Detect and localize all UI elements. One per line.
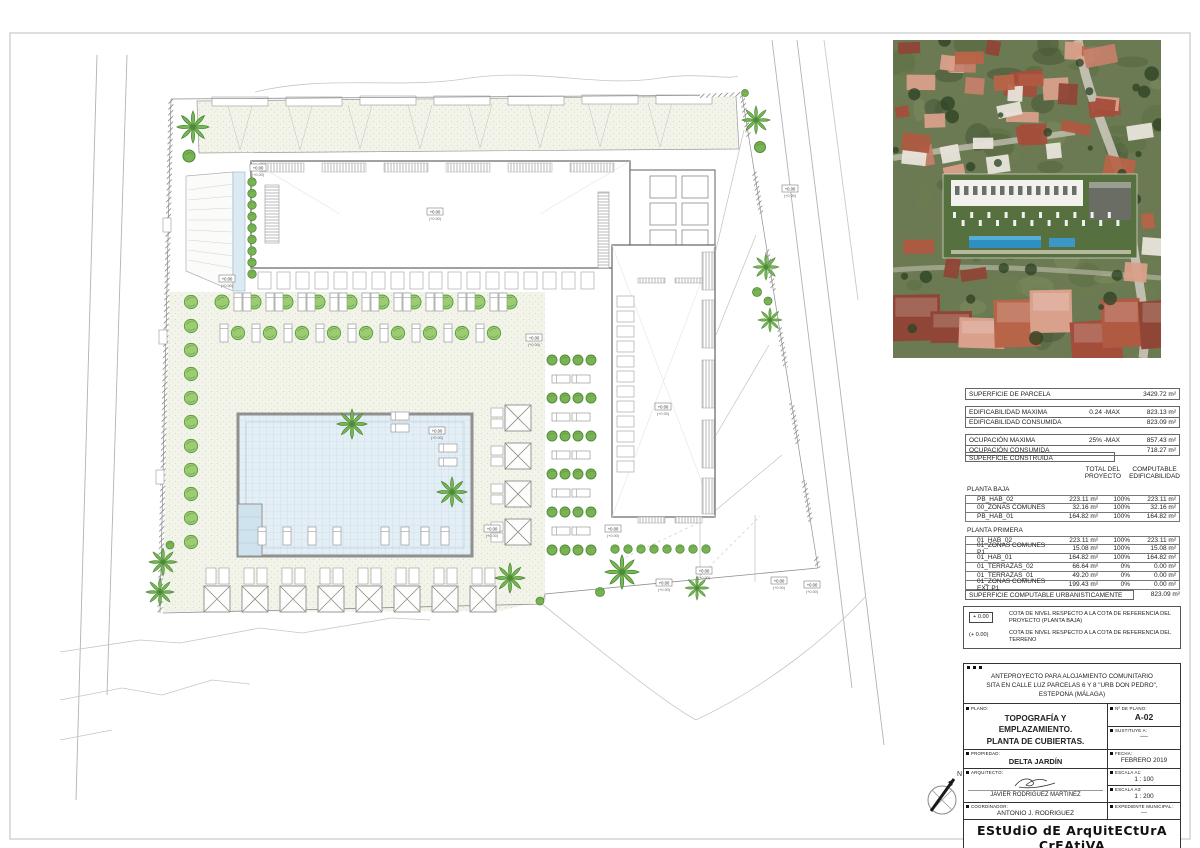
cota-legend: + 0.00 COTA DE NIVEL RESPECTO A LA COTA … [963,606,1181,649]
building-roof-east [612,245,715,523]
propiedad-cell: PROPIEDAD: DELTA JARDÍN [964,750,1108,768]
escala-a3-value: 1 : 200 [1112,793,1176,800]
table-row: 01_ZONAS COMUNES EXT P1199.43 m²0%0.00 m… [965,581,1180,590]
cota-marker: +0.00(+0.00) [655,403,671,416]
cota-marker: +0.00(+0.00) [526,334,542,347]
svg-text:+0.00: +0.00 [529,336,540,341]
parcel-table-group: EDIFICABILIDAD MAXIMA0.24 -MAX823.13 m²E… [965,406,1180,428]
svg-text:+0.00: +0.00 [608,527,619,532]
cota-marker: +0.00(+0.00) [656,579,672,592]
parcel-table-group: SUPERFICIE DE PARCELA3429.72 m² [965,388,1180,400]
legend-text-terrain: COTA DE NIVEL RESPECTO A LA COTA DE REFE… [1009,630,1175,644]
aerial-photo-render [893,40,1161,358]
table-row: 01_TERRAZAS_0266.64 m²0%0.00 m² [965,563,1180,572]
aerial-photo [893,40,1161,358]
firm-banner: EStUdiO dE ArqUitECtUrA CrEAtiVA www.sua… [964,819,1180,848]
escala-a1-label: ESCALA A1: [1110,770,1142,775]
table-row: EDIFICABILIDAD MAXIMA0.24 -MAX823.13 m² [966,407,1179,417]
expediente-label: EXPEDIENTE MUNICIPAL: [1110,804,1173,809]
svg-text:+0.00: +0.00 [253,166,264,171]
coordinador-cell: COORDINADOR: ANTONIO J. RODRIGUEZ [964,803,1108,819]
table-row: EDIFICABILIDAD CONSUMIDA823.09 m² [966,417,1179,427]
project-title: ANTEPROYECTO PARA ALOJAMIENTO COMUNITARI… [964,664,1180,703]
built-table-columns: TOTAL DEL PROYECTO COMPUTABLE EDIFICABIL… [965,466,1180,481]
cota-marker: +0.00(+0.00) [782,185,798,198]
building-roof-wing [630,170,715,252]
drawing-sheet: +0.00(+0.00)+0.00(+0.00)+0.00(+0.00)+0.0… [0,0,1200,848]
sustituye-label: SUSTITUYE A: [1110,728,1147,733]
project-line-1: ANTEPROYECTO PARA ALOJAMIENTO COMUNITARI… [970,672,1174,681]
built-area-table: SUPERFICIE CONSTRUIDA TOTAL DEL PROYECTO… [965,452,1180,600]
plano-name-2: PLANTA DE CUBIERTAS. [968,736,1103,747]
svg-text:(+0.00): (+0.00) [698,576,711,580]
svg-text:(+0.00): (+0.00) [486,534,499,538]
plano-cell: PLANO: TOPOGRAFÍA Y EMPLAZAMIENTO. PLANT… [964,704,1108,748]
built-table-title: SUPERFICIE CONSTRUIDA [965,452,1115,462]
cota-marker: +0.00(+0.00) [804,581,820,594]
built-table-footer: SUPERFICIE COMPUTABLE URBANISTICAMENTE 8… [965,590,1180,600]
escala-a1-value: 1 : 100 [1112,776,1176,783]
project-line-2: SITA EN CALLE LUZ PARCELAS 6 Y 8 "URB DO… [970,681,1174,690]
firm-name: EStUdiO dE ArqUitECtUrA CrEAtiVA [966,823,1178,848]
building-roof-main [251,161,630,289]
cota-marker: +0.00(+0.00) [484,525,500,538]
footer-label: SUPERFICIE COMPUTABLE URBANISTICAMENTE [965,590,1134,600]
cota-marker: +0.00(+0.00) [696,567,712,580]
svg-text:(+0.00): (+0.00) [657,412,670,416]
project-line-3: ESTEPONA (MÁLAGA) [970,690,1174,699]
plano-label: PLANO: [966,706,988,711]
table-row: SUPERFICIE DE PARCELA3429.72 m² [966,389,1179,399]
table-row: 01_HAB_01164.82 m²100%164.82 m² [965,554,1180,563]
section-title: PLANTA BAJA [965,485,1180,495]
fecha-label: FECHA: [1110,751,1132,756]
svg-text:+0.00: +0.00 [432,429,443,434]
sustituye-cell: SUSTITUYE A: ---- [1108,727,1180,749]
svg-text:+0.00: +0.00 [658,405,669,410]
coordinador-label: COORDINADOR: [966,804,1008,809]
svg-text:(+0.00): (+0.00) [806,590,819,594]
svg-text:+0.00: +0.00 [774,579,785,584]
svg-text:+0.00: +0.00 [222,277,233,282]
fecha-value: FEBRERO 2019 [1112,757,1176,764]
arquitecto-label: ARQUITECTO: [966,770,1003,775]
cota-marker: +0.00(+0.00) [427,208,443,221]
legend-text-project: COTA DE NIVEL RESPECTO A LA COTA DE REFE… [1009,611,1175,625]
parcel-data-table: SUPERFICIE DE PARCELA3429.72 m²EDIFICABI… [965,388,1180,462]
coordinador-value: ANTONIO J. RODRIGUEZ [968,810,1103,817]
svg-text:+0.00: +0.00 [659,581,670,586]
svg-text:(+0.00): (+0.00) [784,194,797,198]
sustituye-value: ---- [1112,734,1176,740]
cota-marker: +0.00(+0.00) [605,525,621,538]
architect-signature [1007,776,1065,789]
fecha-cell: FECHA: FEBRERO 2019 [1108,750,1180,768]
table-row: PB_HAB_01164.82 m²100%164.82 m² [965,513,1180,522]
title-block: ANTEPROYECTO PARA ALOJAMIENTO COMUNITARI… [963,663,1181,848]
cota-marker: +0.00(+0.00) [429,427,445,440]
svg-text:(+0.00): (+0.00) [528,343,541,347]
expediente-value: --- [1112,810,1176,816]
svg-text:+0.00: +0.00 [807,583,818,588]
escala-a1-cell: ESCALA A1: 1 : 100 [1108,769,1180,786]
propiedad-label: PROPIEDAD: [966,751,1000,756]
table-row: PB_HAB_02223.11 m²100%223.11 m² [965,495,1180,504]
svg-text:+0.00: +0.00 [430,210,441,215]
svg-text:(+0.00): (+0.00) [431,436,444,440]
col-computable: COMPUTABLE EDIFICABILIDAD [1129,466,1180,481]
svg-text:(+0.00): (+0.00) [658,588,671,592]
propiedad-value: DELTA JARDÍN [968,757,1103,766]
corner-marks [967,666,982,669]
svg-text:(+0.00): (+0.00) [252,173,265,177]
svg-text:(+0.00): (+0.00) [773,586,786,590]
col-total: TOTAL DEL PROYECTO [1085,466,1121,481]
svg-text:+0.00: +0.00 [699,569,710,574]
north-label: N [957,771,962,778]
cota-marker: +0.00(+0.00) [771,577,787,590]
roof-planted-strip [197,95,739,153]
svg-text:(+0.00): (+0.00) [429,217,442,221]
plan-number-value: A-02 [1112,711,1176,722]
svg-text:+0.00: +0.00 [785,187,796,192]
expediente-cell: EXPEDIENTE MUNICIPAL: --- [1108,803,1180,819]
cota-marker: +0.00(+0.00) [250,164,266,177]
svg-text:(+0.00): (+0.00) [221,284,234,288]
section-title: PLANTA PRIMERA [965,526,1180,536]
table-row: 00_ZONAS COMUNES32.16 m²100%32.16 m² [965,504,1180,513]
table-row: OCUPACIÓN MAXIMA25% -MAX857.43 m² [966,435,1179,445]
plan-number-cell: Nº DE PLANO: A-02 [1108,704,1180,727]
table-row: 01_ZONAS COMUNES P115.08 m²100%15.08 m² [965,545,1180,554]
legend-symbol-boxed: + 0.00 [969,612,993,623]
escala-a3-cell: ESCALA A3: 1 : 200 [1108,786,1180,802]
legend-symbol-plain: (+ 0.00) [969,631,988,640]
arquitecto-value: JAVIER RODRIGUEZ MARTINEZ [968,790,1103,798]
escala-a3-label: ESCALA A3: [1110,787,1142,792]
plan-number-label: Nº DE PLANO: [1110,706,1147,711]
plano-name-1: TOPOGRAFÍA Y EMPLAZAMIENTO. [968,713,1103,735]
svg-text:+0.00: +0.00 [487,527,498,532]
footer-value: 823.09 m² [1134,591,1180,598]
arquitecto-cell: ARQUITECTO: JAVIER RODRIGUEZ MARTINEZ [964,769,1108,802]
cota-marker: +0.00(+0.00) [219,275,235,288]
svg-text:(+0.00): (+0.00) [607,534,620,538]
